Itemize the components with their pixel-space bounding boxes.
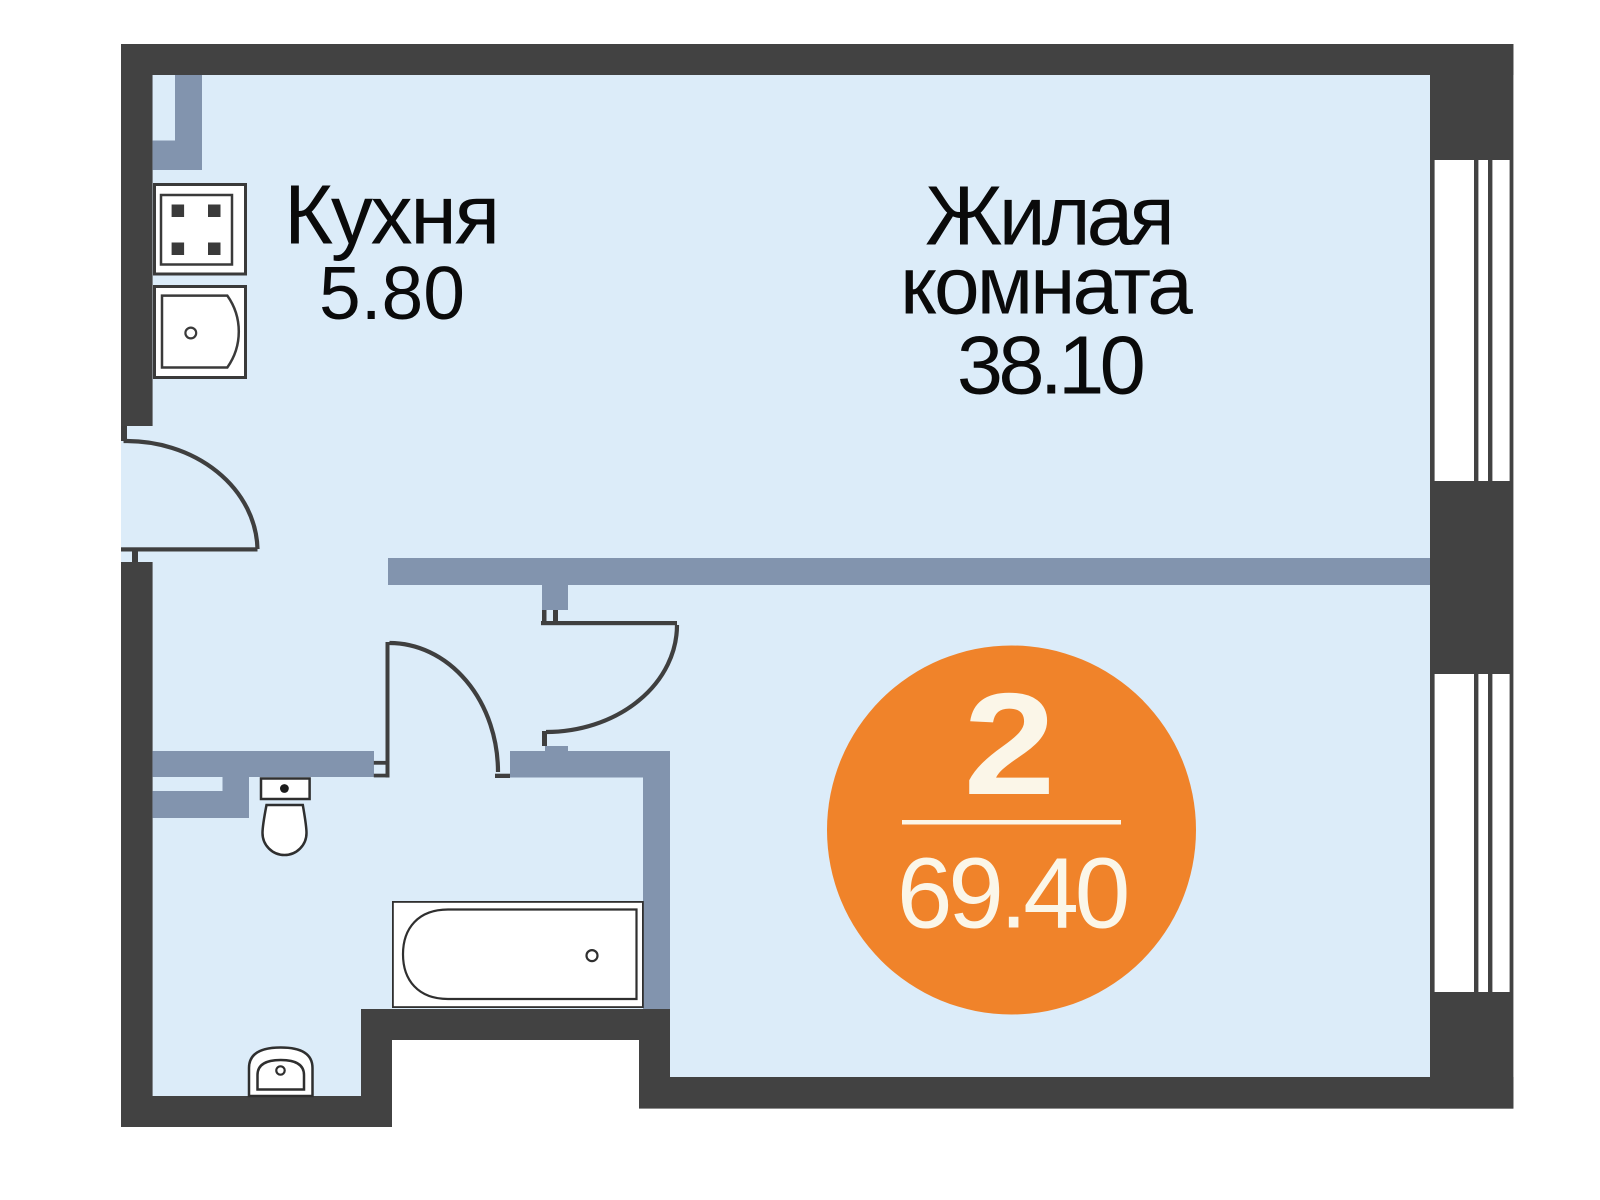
svg-text:5.80: 5.80 — [319, 251, 465, 335]
svg-text:69.40: 69.40 — [897, 838, 1127, 950]
svg-text:38.10: 38.10 — [957, 319, 1143, 412]
svg-text:Кухня: Кухня — [284, 168, 498, 262]
svg-text:2: 2 — [964, 663, 1056, 825]
